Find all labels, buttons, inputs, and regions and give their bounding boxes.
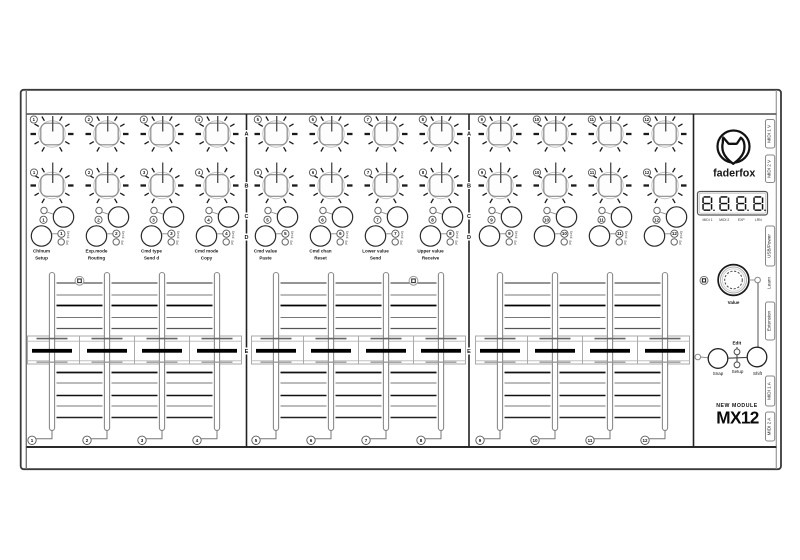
svg-text:Sel: Sel	[289, 240, 293, 245]
svg-text:11: 11	[599, 217, 604, 222]
svg-text:Sel: Sel	[513, 240, 517, 245]
svg-text:USB/Power: USB/Power	[766, 234, 771, 258]
svg-text:11: 11	[590, 170, 595, 175]
svg-text:LRN: LRN	[755, 218, 762, 222]
svg-text:Set d: Set d	[514, 231, 518, 239]
svg-text:D: D	[467, 235, 471, 241]
svg-text:Sel: Sel	[175, 240, 179, 245]
svg-text:MX12: MX12	[716, 408, 759, 428]
svg-text:MIDI 2: MIDI 2	[719, 218, 729, 222]
svg-text:Upper value: Upper value	[417, 249, 444, 254]
svg-text:D: D	[245, 235, 249, 241]
svg-text:Paste: Paste	[259, 256, 272, 261]
svg-text:E: E	[245, 349, 249, 355]
svg-text:Reset: Reset	[314, 256, 327, 261]
svg-text:10: 10	[562, 231, 568, 236]
svg-text:Set d: Set d	[569, 231, 573, 239]
svg-text:11: 11	[617, 231, 622, 236]
svg-text:12: 12	[645, 170, 650, 175]
svg-text:Set d: Set d	[66, 231, 70, 239]
svg-text:Setup: Setup	[732, 369, 744, 374]
svg-text:B: B	[467, 184, 471, 190]
svg-text:Snap: Snap	[713, 371, 724, 376]
svg-text:10: 10	[535, 170, 540, 175]
svg-text:Cmd value: Cmd value	[254, 249, 278, 254]
svg-text:MIDI 1 A: MIDI 1 A	[766, 381, 771, 400]
svg-text:Edit: Edit	[732, 341, 741, 346]
svg-text:Sel: Sel	[568, 240, 572, 245]
svg-text:Exp.mode: Exp.mode	[86, 249, 108, 254]
svg-text:Value: Value	[728, 300, 740, 305]
svg-text:A: A	[245, 132, 249, 138]
svg-text:Set d: Set d	[345, 231, 349, 239]
svg-text:E: E	[467, 349, 471, 355]
svg-text:Receive: Receive	[422, 256, 440, 261]
svg-text:Send d: Send d	[144, 256, 160, 261]
svg-text:Set d: Set d	[624, 231, 628, 239]
svg-text:C: C	[245, 214, 249, 220]
svg-text:Learn: Learn	[767, 277, 772, 289]
svg-text:Set d: Set d	[400, 231, 404, 239]
svg-text:Send: Send	[370, 256, 381, 261]
svg-text:Sel: Sel	[344, 240, 348, 245]
svg-text:Set d: Set d	[121, 231, 125, 239]
svg-text:Extension: Extension	[766, 310, 771, 331]
svg-text:MIDI 1 V: MIDI 1 V	[766, 124, 771, 143]
svg-text:11: 11	[588, 438, 593, 443]
svg-text:Ch/num: Ch/num	[33, 249, 50, 254]
svg-text:Set d: Set d	[231, 231, 235, 239]
svg-text:12: 12	[644, 117, 649, 122]
svg-text:Set d: Set d	[176, 231, 180, 239]
svg-text:Set d: Set d	[455, 231, 459, 239]
svg-text:Sel: Sel	[623, 240, 627, 245]
svg-text:10: 10	[544, 217, 550, 222]
svg-text:EXP: EXP	[738, 218, 746, 222]
svg-text:Setup: Setup	[35, 256, 48, 261]
svg-text:MIDI 1: MIDI 1	[703, 218, 713, 222]
svg-text:10: 10	[532, 438, 538, 443]
svg-text:C: C	[467, 214, 471, 220]
svg-text:Sel: Sel	[65, 240, 69, 245]
svg-text:Sel: Sel	[120, 240, 124, 245]
svg-text:Shift: Shift	[753, 371, 763, 376]
svg-text:10: 10	[534, 117, 539, 122]
svg-text:Sel: Sel	[454, 240, 458, 245]
svg-text:Cmd mode: Cmd mode	[195, 249, 219, 254]
svg-text:11: 11	[590, 117, 595, 122]
svg-text:MIDI 2 V: MIDI 2 V	[766, 159, 771, 178]
svg-text:Sel: Sel	[399, 240, 403, 245]
svg-text:Sel: Sel	[230, 240, 234, 245]
svg-text:12: 12	[672, 231, 678, 236]
svg-text:faderfox: faderfox	[713, 168, 755, 180]
svg-text:Copy: Copy	[201, 256, 213, 261]
svg-text:B: B	[245, 184, 249, 190]
svg-text:12: 12	[642, 438, 648, 443]
svg-text:MIDI 2 A: MIDI 2 A	[766, 417, 771, 436]
svg-text:12: 12	[654, 217, 660, 222]
svg-text:Set d: Set d	[679, 231, 683, 239]
svg-text:Routing: Routing	[88, 256, 106, 261]
svg-text:Lower value: Lower value	[362, 249, 389, 254]
svg-text:A: A	[467, 132, 471, 138]
svg-text:Sel: Sel	[678, 240, 682, 245]
svg-text:Set d: Set d	[290, 231, 294, 239]
svg-text:Cmd type: Cmd type	[141, 249, 162, 254]
svg-text:Cmd chan: Cmd chan	[309, 249, 331, 254]
